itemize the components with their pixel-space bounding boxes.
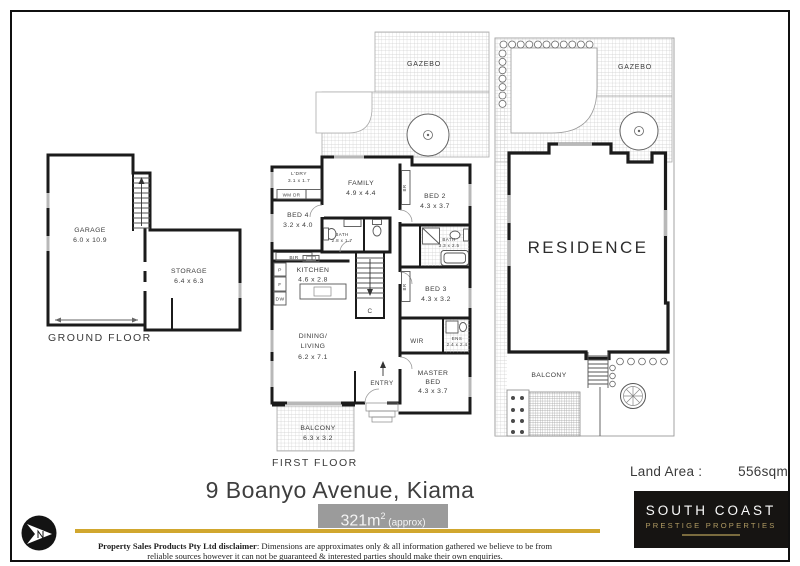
island-bench-icon <box>300 284 346 299</box>
label-pantry: P <box>278 268 282 274</box>
door-gap <box>320 205 324 217</box>
stairs-ground-icon <box>133 177 150 228</box>
sink-icon <box>314 287 331 296</box>
label-dishwasher: DW <box>276 297 285 303</box>
door-gap <box>143 262 147 271</box>
room-label-bed4: BED 4 <box>287 212 309 219</box>
room-dims-bed4: 3.2 x 4.0 <box>283 222 313 229</box>
firepit-dot-site <box>638 130 640 132</box>
room-label-residence: RESIDENCE <box>528 238 649 257</box>
window <box>271 330 274 352</box>
balcony-post <box>342 402 355 407</box>
laundry-tub-icon <box>306 190 321 200</box>
agency-name: SOUTH COAST <box>646 503 777 518</box>
disclaimer-text: Property Sales Products Pty Ltd disclaim… <box>85 541 565 562</box>
logo-underline <box>682 534 740 536</box>
floor-area-badge: 321m2 (approx) <box>318 504 448 528</box>
room-label-garage: GARAGE <box>74 227 106 234</box>
room-label-gazebo-site: GAZEBO <box>618 64 652 71</box>
room-dims-storage: 6.4 x 6.3 <box>174 278 204 285</box>
room-dims-ens: 2.4 x 2.4 <box>447 342 468 347</box>
porch-steps <box>366 403 398 422</box>
garage-door-icon <box>55 318 138 323</box>
room-label-master1: MASTER <box>418 370 449 377</box>
side-path <box>495 108 507 436</box>
label-robe-bed2: BR <box>402 184 407 191</box>
gold-divider <box>75 529 600 533</box>
round-table-icon <box>621 384 646 409</box>
balcony-post <box>272 402 285 407</box>
land-area: Land Area : 556sqm <box>630 464 788 479</box>
room-label-entry: ENTRY <box>370 380 394 387</box>
room-label-bath2: BATH <box>442 237 455 242</box>
compass-north-icon <box>22 516 57 551</box>
window <box>271 361 274 387</box>
room-dims-ldry: 3.1 x 1.7 <box>288 178 310 184</box>
firepit-dot <box>427 134 429 136</box>
room-label-family: FAMILY <box>348 180 374 187</box>
balustrade-icons <box>610 358 668 387</box>
sliding-door <box>287 402 341 406</box>
window <box>239 283 242 298</box>
room-dims-family: 4.9 x 4.4 <box>346 190 376 197</box>
label-cupboard: C <box>368 308 373 315</box>
door-gap <box>398 210 402 222</box>
room-label-bed3: BED 3 <box>425 286 447 293</box>
property-address: 9 Boanyo Avenue, Kiama <box>140 477 540 504</box>
garden-bed-site <box>511 48 597 133</box>
room-label-wir: WIR <box>410 338 423 345</box>
room-dims-garage: 6.0 x 10.9 <box>73 237 107 244</box>
room-dims-bed3: 4.3 x 3.2 <box>421 296 451 303</box>
room-dims-bath2: 3.3 x 2.5 <box>439 243 460 248</box>
window <box>469 288 472 308</box>
window <box>271 214 274 242</box>
residence-site-plan: GAZEBO RESIDENCE BALCONY <box>495 38 674 436</box>
window <box>558 143 592 146</box>
entry-arrow-icon <box>380 361 386 376</box>
window <box>508 195 511 223</box>
door-gap <box>143 282 147 291</box>
floor-area-value: 321m <box>340 512 380 529</box>
window <box>664 210 667 236</box>
agency-tagline: PRESTIGE PROPERTIES <box>645 521 776 530</box>
label-bir: BIR <box>289 255 298 261</box>
label-fridge: F <box>278 282 281 288</box>
first-floor-plan: GAZEBO <box>271 32 490 469</box>
door-gap <box>398 357 402 369</box>
agency-logo: SOUTH COAST PRESTIGE PROPERTIES <box>634 491 788 548</box>
room-dims-master: 4.3 x 3.7 <box>418 388 448 395</box>
room-label-storage: STORAGE <box>171 268 207 275</box>
room-label-gazebo-first: GAZEBO <box>407 61 441 68</box>
room-dims-dining: 6.2 x 7.1 <box>298 354 328 361</box>
disclaimer-lead: Property Sales Products Pty Ltd disclaim… <box>98 541 257 551</box>
ground-floor-title: GROUND FLOOR <box>48 332 152 344</box>
room-dims-bath: 2.8 x 1.7 <box>332 238 353 243</box>
room-label-balcony-first: BALCONY <box>300 425 335 432</box>
ensuite-fixtures <box>446 321 467 333</box>
window <box>469 184 472 206</box>
stairs-first-icon <box>356 258 384 298</box>
label-robe-bed3: BR <box>402 283 407 290</box>
land-area-label: Land Area : <box>630 464 702 479</box>
bathroom-fixtures <box>324 220 382 241</box>
window <box>271 172 274 188</box>
land-area-value: 556sqm <box>738 464 788 479</box>
ground-floor-plan: GARAGE 6.0 x 10.9 STORAGE 6.4 x 6.3 GROU… <box>47 155 242 344</box>
room-dims-balcony-first: 6.3 x 3.2 <box>303 435 333 442</box>
room-dims-bed2: 4.3 x 3.7 <box>420 203 450 210</box>
room-label-dining1: DINING/ <box>299 333 327 340</box>
room-label-ldry: L'DRY <box>291 171 307 177</box>
window <box>47 193 50 208</box>
room-label-bed2: BED 2 <box>424 193 446 200</box>
garden-bed <box>316 92 372 133</box>
room-label-master2: BED <box>425 379 440 386</box>
room-label-ens: ENS <box>452 336 462 341</box>
garden-steps <box>507 390 580 436</box>
first-floor-title: FIRST FLOOR <box>272 457 358 469</box>
window <box>47 236 50 251</box>
window <box>334 156 364 159</box>
floor-area-approx: (approx) <box>386 517 426 528</box>
room-dims-kitchen: 4.6 x 2.8 <box>298 277 328 284</box>
room-label-dining2: LIVING <box>301 343 326 350</box>
room-label-balcony-site: BALCONY <box>531 372 566 379</box>
window <box>469 377 472 397</box>
floorplan-page: GARAGE 6.0 x 10.9 STORAGE 6.4 x 6.3 GROU… <box>0 0 800 566</box>
room-label-bath: BATH <box>335 232 348 237</box>
label-wm-dr: WM DR <box>283 193 301 198</box>
room-label-kitchen: KITCHEN <box>297 267 330 274</box>
window <box>508 240 511 266</box>
